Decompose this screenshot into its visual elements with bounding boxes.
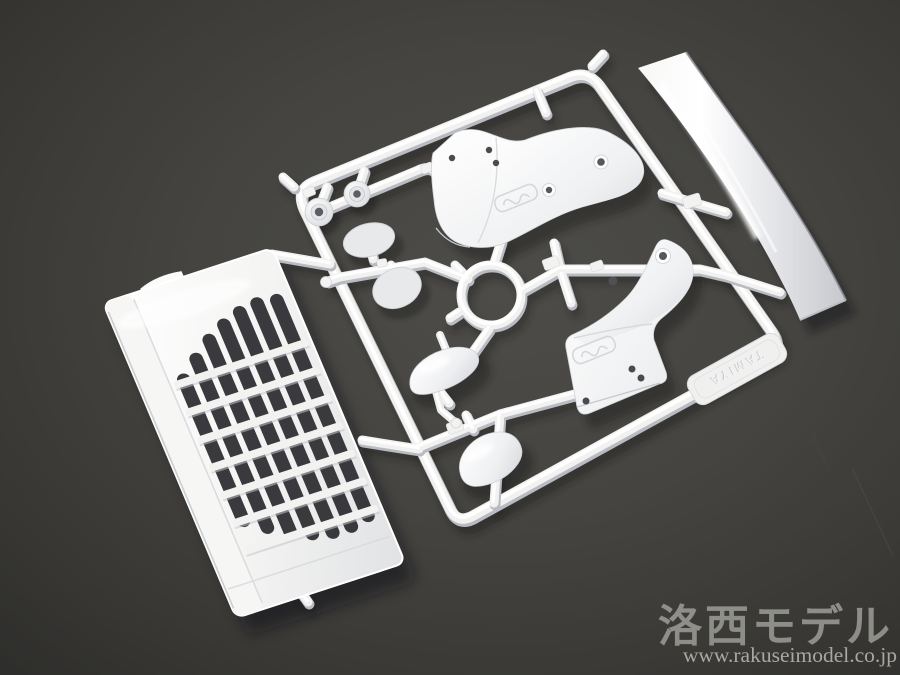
runner-ball-end xyxy=(321,277,332,288)
grommet-cap-right-part xyxy=(344,181,370,207)
watermark-url-text: www.rakuseimodel.co.jp xyxy=(683,643,897,667)
product-photo: TAMIYA TAMIYA 洛西モデル www.rakuseimodel.co.… xyxy=(0,0,900,675)
watermark: 洛西モデル www.rakuseimodel.co.jp xyxy=(658,601,897,667)
photo-canvas: TAMIYA TAMIYA 洛西モデル www.rakuseimodel.co.… xyxy=(0,0,900,675)
grommet-cap-left-part xyxy=(305,198,333,226)
